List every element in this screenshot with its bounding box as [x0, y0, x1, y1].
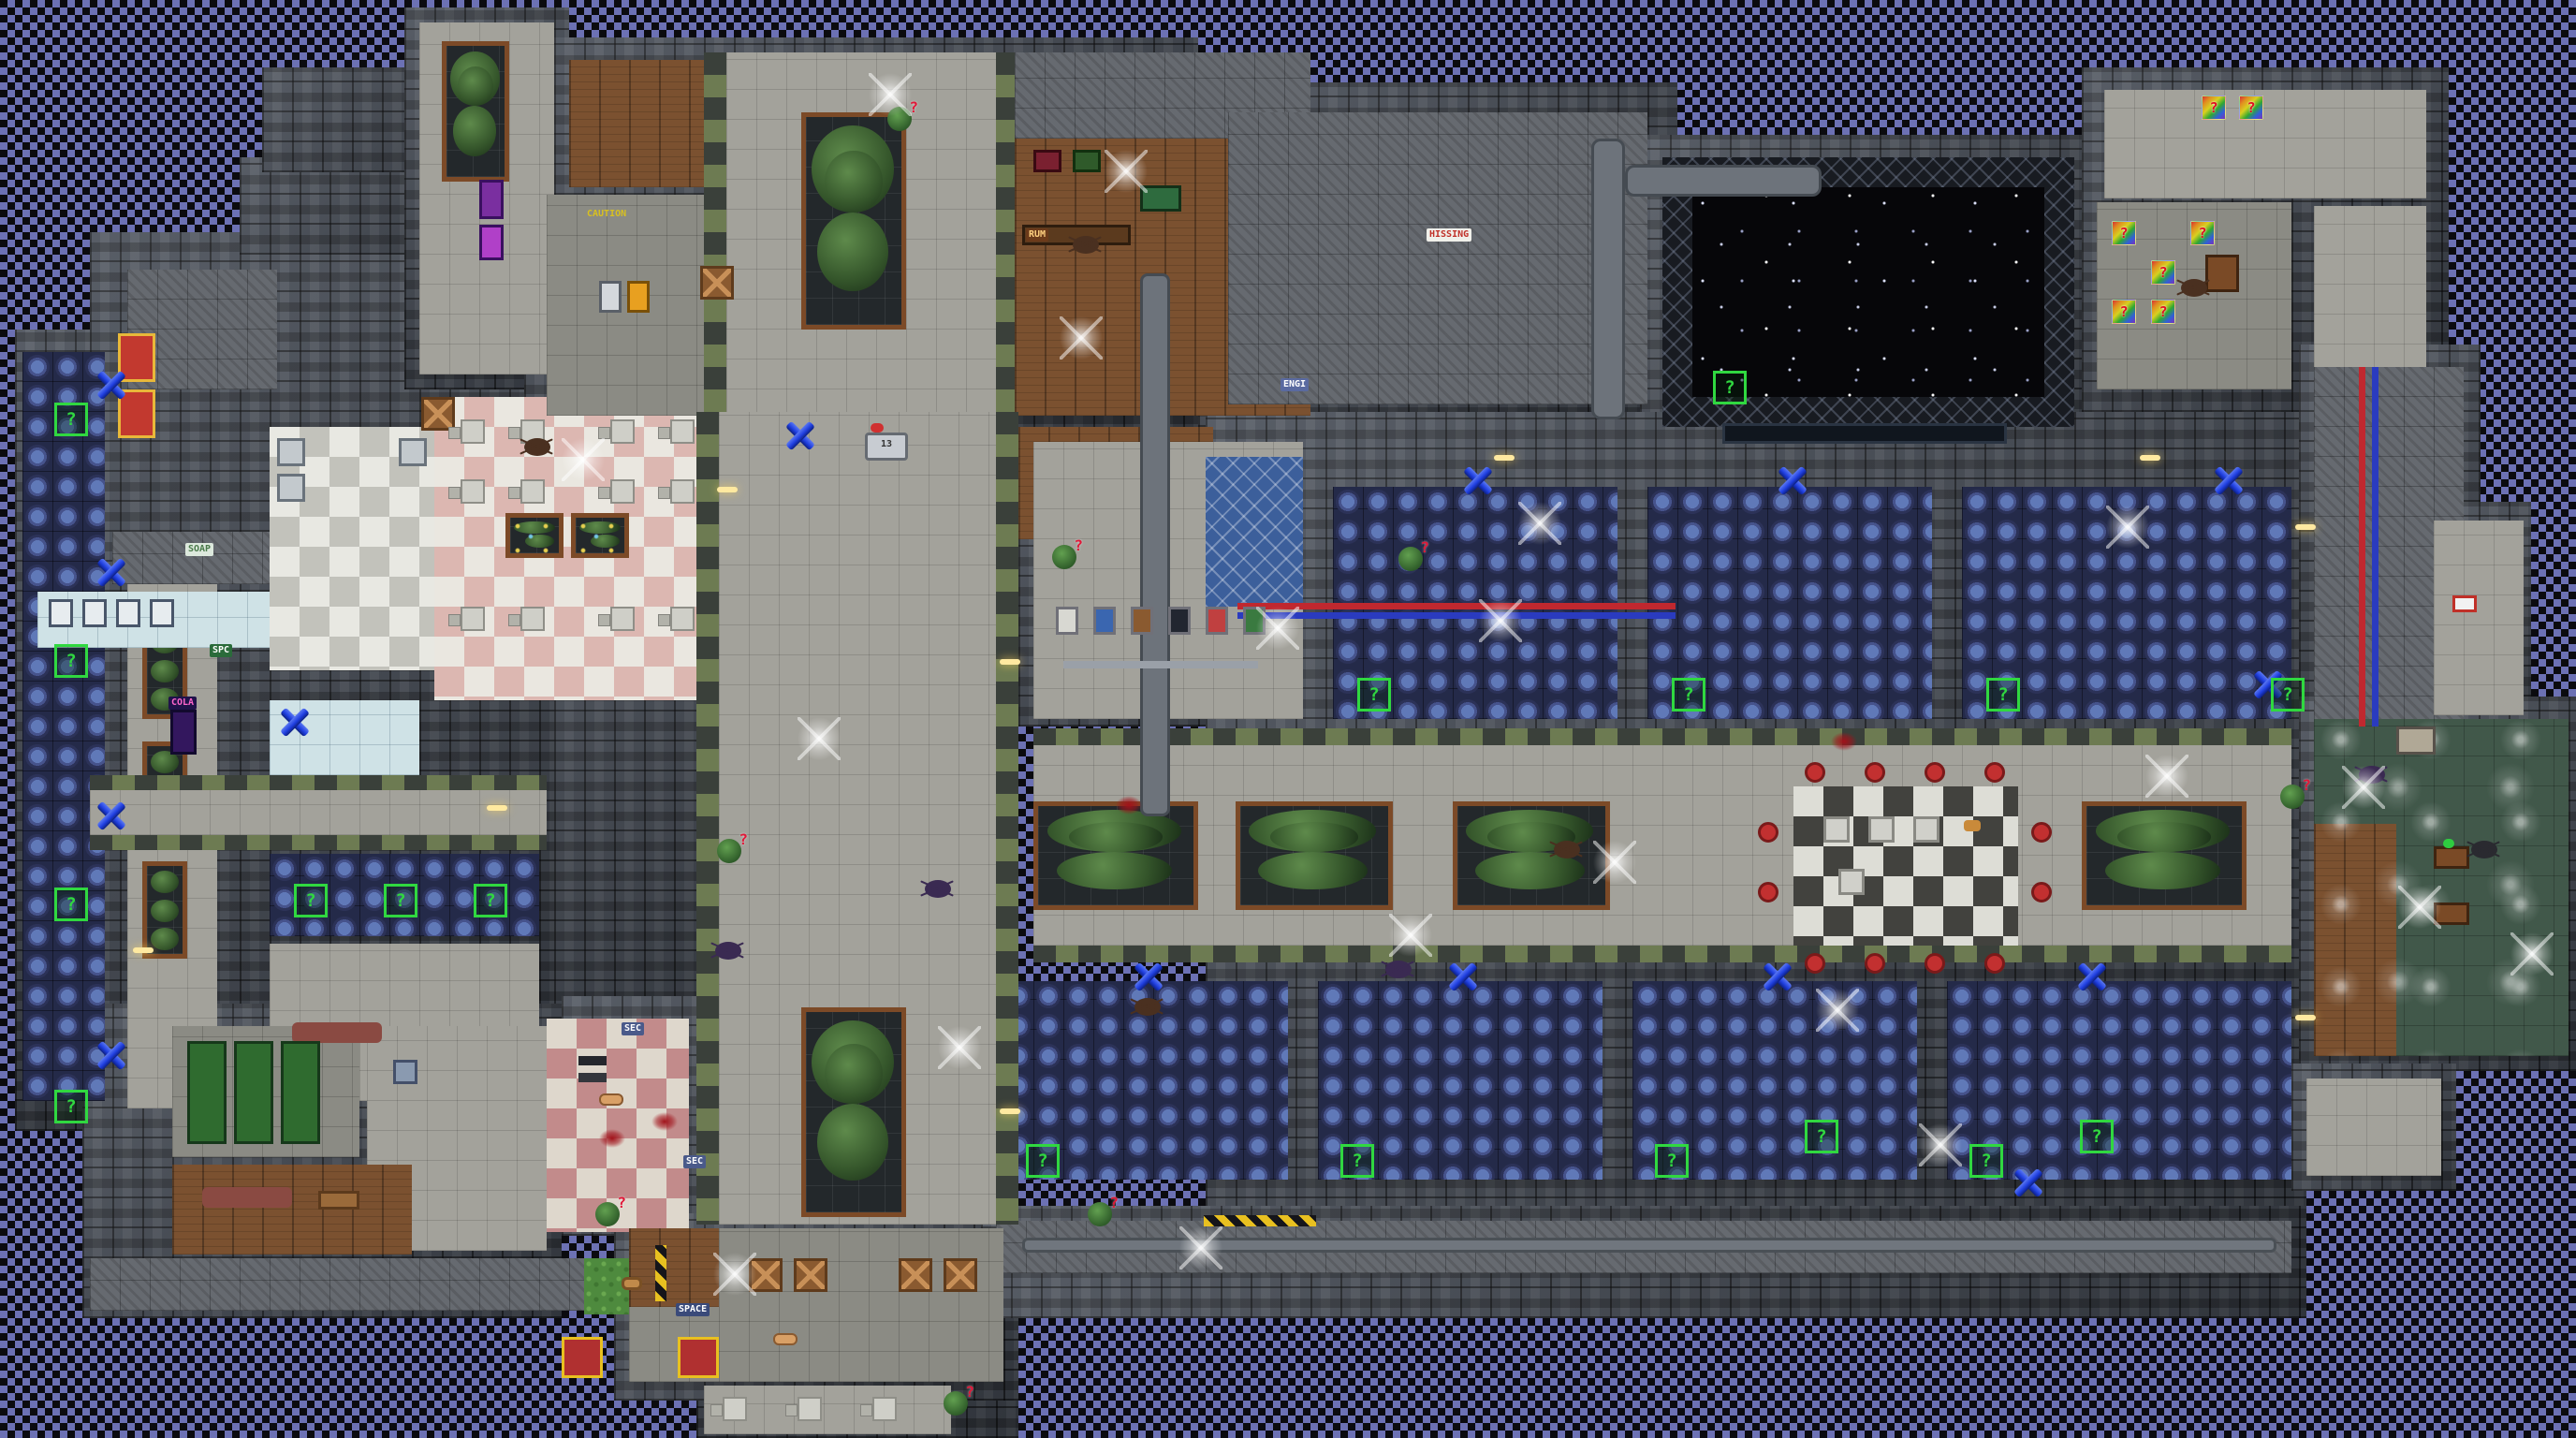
tree-foliage — [151, 871, 179, 893]
stool — [1865, 953, 1885, 974]
green-question-icon: ? — [1969, 1144, 2003, 1178]
blue-x-icon — [2011, 1165, 2046, 1200]
stool — [1758, 822, 1778, 843]
sign: HISSING — [1427, 228, 1471, 242]
court-counter-3 — [1913, 816, 1939, 843]
tree-foliage — [1069, 822, 1163, 852]
appliance-3 — [399, 438, 427, 466]
mannequin-4 — [1168, 607, 1191, 635]
spider-icon — [2471, 841, 2497, 858]
room-engineering — [1228, 112, 1647, 404]
couch-bot — [202, 1187, 292, 1208]
potted-plant-icon — [887, 107, 912, 131]
room-gym — [112, 532, 270, 584]
dog — [622, 1277, 642, 1290]
light-decal — [133, 947, 154, 953]
tree-foliage — [453, 106, 496, 155]
light-decal — [2295, 1015, 2316, 1020]
stool — [1758, 882, 1778, 902]
hazard-strip — [1204, 1215, 1316, 1226]
gift-box-icon: ? — [2151, 260, 2175, 285]
garden-plaza-3 — [1453, 801, 1610, 910]
sign: SEC — [622, 1022, 644, 1035]
hall-left-edge-top — [90, 775, 547, 790]
blue-x-icon — [1131, 959, 1166, 994]
washer-3 — [116, 599, 140, 627]
green-question-icon: ? — [54, 1090, 88, 1123]
green-question-icon: ? — [54, 644, 88, 678]
garden-cafe-1 — [505, 513, 563, 558]
wooden-crate-icon — [794, 1258, 827, 1292]
gift-crate — [2205, 255, 2239, 292]
table — [610, 419, 635, 444]
green-question-icon: ? — [1357, 678, 1391, 712]
blood-decal — [1116, 796, 1142, 814]
mannequin-3 — [1131, 607, 1153, 635]
spider-icon — [1134, 998, 1161, 1016]
spider-icon — [524, 438, 550, 456]
sign: RUM — [1026, 228, 1048, 242]
table — [723, 1397, 747, 1421]
wooden-crate-icon — [749, 1258, 783, 1292]
wire-red-eng — [1237, 603, 1676, 609]
desk-1 — [2434, 846, 2469, 869]
green-question-icon: ? — [1026, 1144, 1060, 1178]
hydro-tray-2 — [234, 1041, 273, 1144]
table — [872, 1397, 897, 1421]
hazard-strip-2 — [655, 1245, 666, 1301]
escape-door-1 — [562, 1337, 603, 1378]
blue-x-icon — [94, 1037, 129, 1073]
medkit — [2452, 595, 2477, 612]
table — [520, 607, 545, 631]
green-question-icon: ? — [1672, 678, 1705, 712]
tree-foliage — [151, 928, 179, 950]
corridor-botleft — [90, 1258, 614, 1311]
spider-icon — [1554, 841, 1580, 858]
blue-x-icon — [2211, 462, 2247, 498]
big-pipe-v — [1591, 139, 1625, 419]
pipe-bottom — [1022, 1238, 2276, 1253]
court-counter-2 — [1868, 816, 1895, 843]
blue-x-icon — [1760, 959, 1795, 994]
mannequin-2 — [1093, 607, 1116, 635]
sign: SPC — [210, 644, 232, 657]
blue-x-icon — [94, 367, 129, 403]
green-question-icon: ? — [474, 884, 507, 917]
garden-plaza-2 — [1236, 801, 1393, 910]
station-map[interactable]: ?????????????????????????SOAPSECSECSPACE… — [0, 0, 2576, 1438]
light-decal — [1000, 1108, 1020, 1114]
tree-foliage — [817, 1104, 887, 1180]
gift-box-icon: ? — [2112, 300, 2136, 324]
green-question-icon: ? — [54, 888, 88, 921]
vendor-purple-2 — [479, 225, 504, 260]
sign: ENGI — [1281, 378, 1309, 391]
blood-decal — [1831, 732, 1857, 751]
rooms-library-annex — [2306, 1078, 2441, 1176]
blue-x-icon — [1775, 462, 1810, 498]
tree-foliage — [579, 521, 621, 535]
tree-foliage — [825, 151, 882, 213]
body-decal — [599, 1093, 623, 1106]
potted-plant-icon — [2280, 785, 2305, 809]
blue-x-icon — [2074, 959, 2110, 994]
cart-umbrella — [871, 423, 884, 433]
table — [610, 479, 635, 504]
sign: SEC — [683, 1155, 706, 1168]
tree-foliage — [1258, 852, 1368, 889]
garden-cafe-2 — [571, 513, 629, 558]
spider-icon — [2359, 766, 2385, 784]
sign: SOAP — [185, 543, 213, 556]
tree-foliage — [825, 1044, 882, 1104]
wire-red-right — [2359, 367, 2365, 726]
sign: 13 — [878, 438, 895, 451]
hydro-tray-3 — [281, 1041, 320, 1144]
weapons-rack-2 — [578, 1073, 607, 1082]
stool — [1984, 762, 2005, 783]
library-wood — [2314, 824, 2396, 1056]
potted-plant-icon — [944, 1391, 968, 1416]
weapons-rack-1 — [578, 1056, 607, 1065]
tree-foliage — [525, 535, 554, 548]
garden-hall-top — [801, 112, 906, 330]
hydro-tray-1 — [187, 1041, 227, 1144]
pipe-v-center — [1140, 273, 1170, 816]
hall-center-top-edge-l — [704, 52, 726, 419]
green-question-icon: ? — [384, 884, 417, 917]
green-question-icon: ? — [1655, 1144, 1689, 1178]
green-question-icon: ? — [1805, 1120, 1838, 1153]
hall-center-edge-l — [696, 412, 719, 1225]
gift-box-icon: ? — [2239, 95, 2263, 120]
spider-icon — [715, 942, 741, 960]
light-decal — [487, 805, 507, 811]
gift-box-icon: ? — [2202, 95, 2226, 120]
desk-lamp — [2443, 839, 2454, 848]
wooden-crate-icon — [944, 1258, 977, 1292]
rooms-right-small — [2434, 521, 2524, 715]
potted-plant-icon — [1398, 547, 1423, 571]
table-bot — [318, 1191, 359, 1210]
stool — [2031, 822, 2052, 843]
blue-x-icon — [277, 704, 313, 740]
room-lounge-bot — [172, 1165, 412, 1255]
chapel-wood — [629, 1228, 719, 1307]
blood-decal — [599, 1129, 625, 1148]
fireplace — [2396, 726, 2436, 755]
canister-orange — [627, 281, 650, 313]
mannequin-6 — [1243, 607, 1266, 635]
stool — [1805, 953, 1825, 974]
rooms-topright-a — [2104, 90, 2426, 198]
blue-x-icon — [94, 798, 129, 833]
theater-quilt — [1206, 457, 1303, 607]
gift-box-icon: ? — [2112, 221, 2136, 245]
table — [670, 607, 695, 631]
table — [520, 479, 545, 504]
washer-2 — [82, 599, 107, 627]
green-question-icon: ? — [2080, 1120, 2114, 1153]
wire-blue-eng — [1237, 612, 1676, 619]
wooden-crate-icon — [700, 266, 734, 300]
burger — [1964, 820, 1981, 831]
painting-2 — [1073, 150, 1101, 172]
green-question-icon: ? — [1340, 1144, 1374, 1178]
sign: COLA — [168, 697, 197, 710]
canister-gray — [599, 281, 622, 313]
table — [798, 1397, 822, 1421]
desk-2 — [2434, 902, 2469, 925]
tree-foliage — [591, 535, 620, 548]
light-decal — [717, 487, 738, 492]
tree-foliage — [1057, 852, 1172, 889]
cola-machine — [170, 710, 197, 755]
table — [670, 479, 695, 504]
solar-band — [1722, 423, 2007, 444]
green-question-icon: ? — [294, 884, 328, 917]
body-decal — [773, 1333, 798, 1345]
courtyard-space — [1692, 187, 2044, 397]
blue-x-icon — [1460, 462, 1496, 498]
light-decal — [2140, 455, 2160, 461]
light-decal — [1000, 659, 1020, 665]
garden-walkway-3 — [142, 861, 187, 959]
spider-icon — [1385, 961, 1412, 978]
potted-plant-icon — [595, 1202, 620, 1226]
room-lounge-top — [569, 60, 711, 187]
light-decal — [1494, 455, 1515, 461]
stool — [1865, 762, 1885, 783]
table — [670, 419, 695, 444]
tree-foliage — [2117, 822, 2211, 852]
table — [610, 607, 635, 631]
stool — [1984, 953, 2005, 974]
hall-left — [90, 790, 547, 835]
sign: CAUTION — [584, 208, 629, 221]
court-counter-1 — [1823, 816, 1850, 843]
table — [461, 479, 485, 504]
stool — [2031, 882, 2052, 902]
tree-foliage — [151, 660, 179, 682]
sign: SPACE — [676, 1303, 710, 1316]
mannequin-5 — [1206, 607, 1228, 635]
blue-x-icon — [94, 554, 129, 590]
washer-4 — [150, 599, 174, 627]
stool — [1925, 762, 1945, 783]
appliance-1 — [277, 438, 305, 466]
green-question-icon: ? — [54, 403, 88, 436]
painting-1 — [1033, 150, 1061, 172]
mannequin-1 — [1056, 607, 1078, 635]
pods-left — [22, 352, 105, 1101]
food-court — [1793, 786, 2018, 946]
stool — [1805, 762, 1825, 783]
table — [461, 607, 485, 631]
light-decal — [2295, 524, 2316, 530]
potted-plant-icon — [717, 839, 741, 863]
wire-blue-right — [2372, 367, 2378, 726]
garden-plaza-4 — [2082, 801, 2247, 910]
tree-foliage — [817, 213, 887, 291]
green-question-icon: ? — [2271, 678, 2305, 712]
green-question-icon: ? — [1713, 371, 1747, 404]
spider-icon — [1073, 236, 1099, 254]
blue-x-icon — [783, 418, 818, 453]
clothes-rack — [1063, 661, 1258, 668]
garden-hall-bot — [801, 1007, 906, 1217]
potted-plant-icon — [1088, 1202, 1112, 1226]
gift-box-icon: ? — [2190, 221, 2215, 245]
tree-foliage — [151, 900, 179, 922]
garden-north — [442, 41, 509, 182]
wooden-crate-icon — [421, 397, 455, 431]
rooms-topright-c — [2314, 206, 2426, 374]
vendor-purple-1 — [479, 180, 504, 219]
tree-foliage — [2105, 852, 2220, 889]
blood-decal — [651, 1112, 678, 1131]
stool — [1925, 953, 1945, 974]
washer-1 — [49, 599, 73, 627]
appliance-2 — [277, 474, 305, 502]
potted-plant-icon — [1052, 545, 1076, 569]
pool-table — [1140, 185, 1181, 212]
couch-left — [292, 1022, 382, 1043]
hall-center-edge-r — [996, 412, 1018, 1225]
wooden-crate-icon — [899, 1258, 932, 1292]
tree-foliage — [514, 521, 555, 535]
table — [461, 419, 485, 444]
tree-foliage — [458, 66, 492, 106]
gift-box-icon: ? — [2151, 300, 2175, 324]
court-counter-4 — [1838, 869, 1865, 895]
blue-x-icon — [1445, 959, 1481, 994]
plaza-edge-top — [1033, 728, 2291, 745]
spider-icon — [2181, 279, 2207, 297]
tree-foliage — [1270, 822, 1359, 852]
big-pipe-h — [1625, 165, 1822, 197]
green-question-icon: ? — [1986, 678, 2020, 712]
escape-door-2 — [678, 1337, 719, 1378]
spider-icon — [925, 880, 951, 898]
barber-chair — [393, 1060, 417, 1084]
garden-plaza-1 — [1033, 801, 1198, 910]
hall-left-edge-bot — [90, 835, 547, 850]
